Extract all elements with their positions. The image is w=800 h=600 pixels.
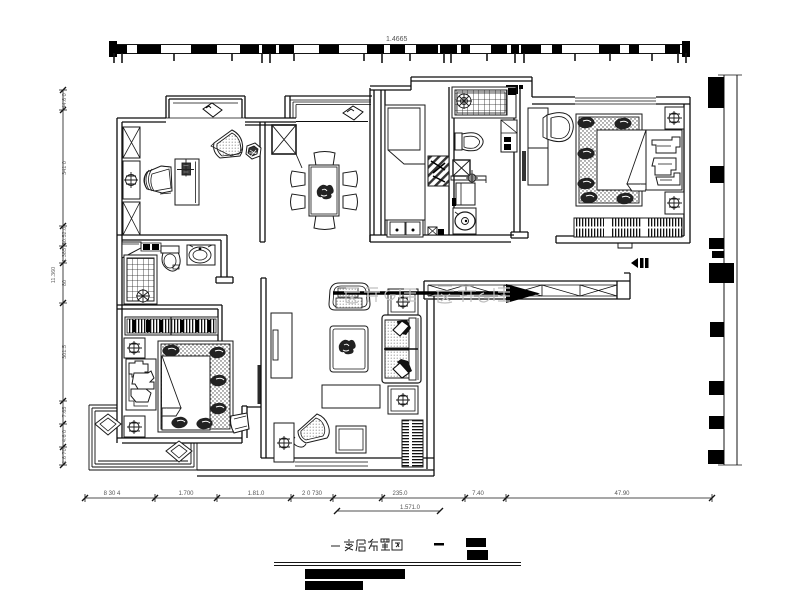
svg-text:7.40: 7.40 bbox=[472, 491, 484, 497]
svg-text:1.700: 1.700 bbox=[178, 491, 194, 497]
svg-text:4.6 0: 4.6 0 bbox=[62, 430, 68, 442]
svg-text:1.571.0: 1.571.0 bbox=[400, 505, 421, 511]
svg-text:8 30 4: 8 30 4 bbox=[104, 491, 121, 497]
svg-text:1.6 70: 1.6 70 bbox=[62, 448, 68, 463]
svg-text:80: 80 bbox=[62, 280, 68, 286]
svg-text:341 0: 341 0 bbox=[62, 161, 68, 175]
svg-text:1.385: 1.385 bbox=[62, 248, 68, 262]
svg-text:7.65: 7.65 bbox=[62, 407, 68, 418]
svg-text:50.52.0: 50.52.0 bbox=[62, 227, 68, 245]
svg-text:44.6 0: 44.6 0 bbox=[62, 93, 68, 108]
svg-text:235.0: 235.0 bbox=[392, 491, 408, 497]
svg-text:1.81.0: 1.81.0 bbox=[248, 491, 265, 497]
svg-text:11.360: 11.360 bbox=[51, 267, 57, 283]
svg-text:301.5: 301.5 bbox=[62, 345, 68, 359]
svg-text:2 0 730: 2 0 730 bbox=[302, 491, 323, 497]
svg-text:47.90: 47.90 bbox=[614, 491, 630, 497]
svg-text:1.4665: 1.4665 bbox=[386, 36, 408, 43]
